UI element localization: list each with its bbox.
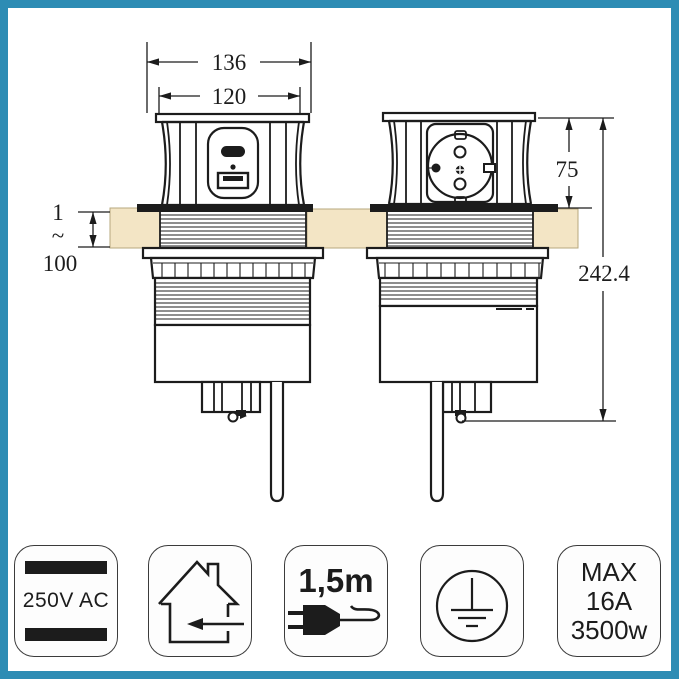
socket-lock-nut [377, 258, 543, 278]
badge-cable-length: 1,5m [284, 545, 388, 657]
dim-label-thickness-tilde: ~ [52, 223, 64, 248]
house-indoor-use-icon [148, 546, 252, 656]
max-load-line-2: 16A [586, 587, 632, 616]
technical-drawing: 136 120 75 242.4 1 ~ 100 [0, 0, 679, 540]
max-load-line-1: MAX [581, 558, 637, 587]
badge-voltage-rating: 250V AC [14, 545, 118, 657]
usb-bottom-connector [202, 382, 260, 422]
schuko-socket-face [426, 124, 495, 205]
insulation-bar-bottom-icon [25, 628, 107, 641]
socket-desk-trim-ring [370, 204, 558, 212]
socket-lower-cylinder [380, 306, 537, 382]
socket-head-cap [383, 113, 535, 121]
dim-label-242: 242.4 [578, 261, 630, 286]
usb-power-cable [271, 382, 283, 501]
product-spec-sheet: 136 120 75 242.4 1 ~ 100 [0, 0, 679, 679]
socket-unit-body [367, 248, 548, 501]
badge-max-load: MAX 16A 3500w [557, 545, 661, 657]
desk-board-left [110, 208, 160, 248]
dim-label-120: 120 [212, 84, 247, 109]
usb-a-port [218, 173, 248, 188]
max-load-line-3: 3500w [571, 616, 648, 645]
dim-label-75: 75 [556, 157, 579, 182]
usb-unit [143, 114, 323, 501]
badge-indoor-use [148, 545, 252, 657]
usb-unit-body [143, 248, 323, 501]
usb-lock-nut [151, 258, 315, 278]
usb-desk-trim-ring [137, 204, 313, 212]
led-indicator [230, 164, 235, 169]
cable-length-label: 1,5m [298, 564, 373, 597]
insulation-bar-top-icon [25, 561, 107, 574]
usb-lower-cylinder [155, 325, 310, 382]
dim-label-136: 136 [212, 50, 247, 75]
earth-ground-icon [420, 546, 524, 656]
desk-board-right [533, 209, 578, 248]
socket-unit-head [383, 113, 535, 205]
socket-earth-clip-right [484, 164, 495, 172]
socket-threaded-body [380, 278, 537, 306]
socket-unit-through-thread [387, 212, 533, 248]
voltage-label: 250V AC [23, 589, 109, 613]
socket-bottom-connector [443, 382, 491, 423]
plug-with-cable-icon [284, 599, 388, 645]
usb-mounting-flange [143, 248, 323, 258]
usb-unit-head [156, 114, 309, 205]
socket-power-cable [431, 382, 443, 501]
usb-head-cap [156, 114, 309, 122]
socket-mounting-flange [367, 248, 548, 258]
socket-pin-hole-top [455, 147, 466, 158]
dim-label-thickness-max: 100 [43, 251, 78, 276]
dim-desk-thickness: 1 ~ 100 [43, 200, 110, 276]
socket-unit [367, 113, 548, 501]
usb-unit-through-thread [160, 212, 306, 248]
desk-board-middle [307, 209, 387, 248]
usb-c-port [221, 146, 245, 157]
dim-body-width-120: 120 [159, 84, 300, 113]
socket-pin-hole-bottom [455, 179, 466, 190]
dim-label-thickness-min: 1 [52, 200, 64, 225]
usb-threaded-body [155, 278, 310, 325]
badge-earthed [420, 545, 524, 657]
socket-center-screw [456, 166, 464, 174]
